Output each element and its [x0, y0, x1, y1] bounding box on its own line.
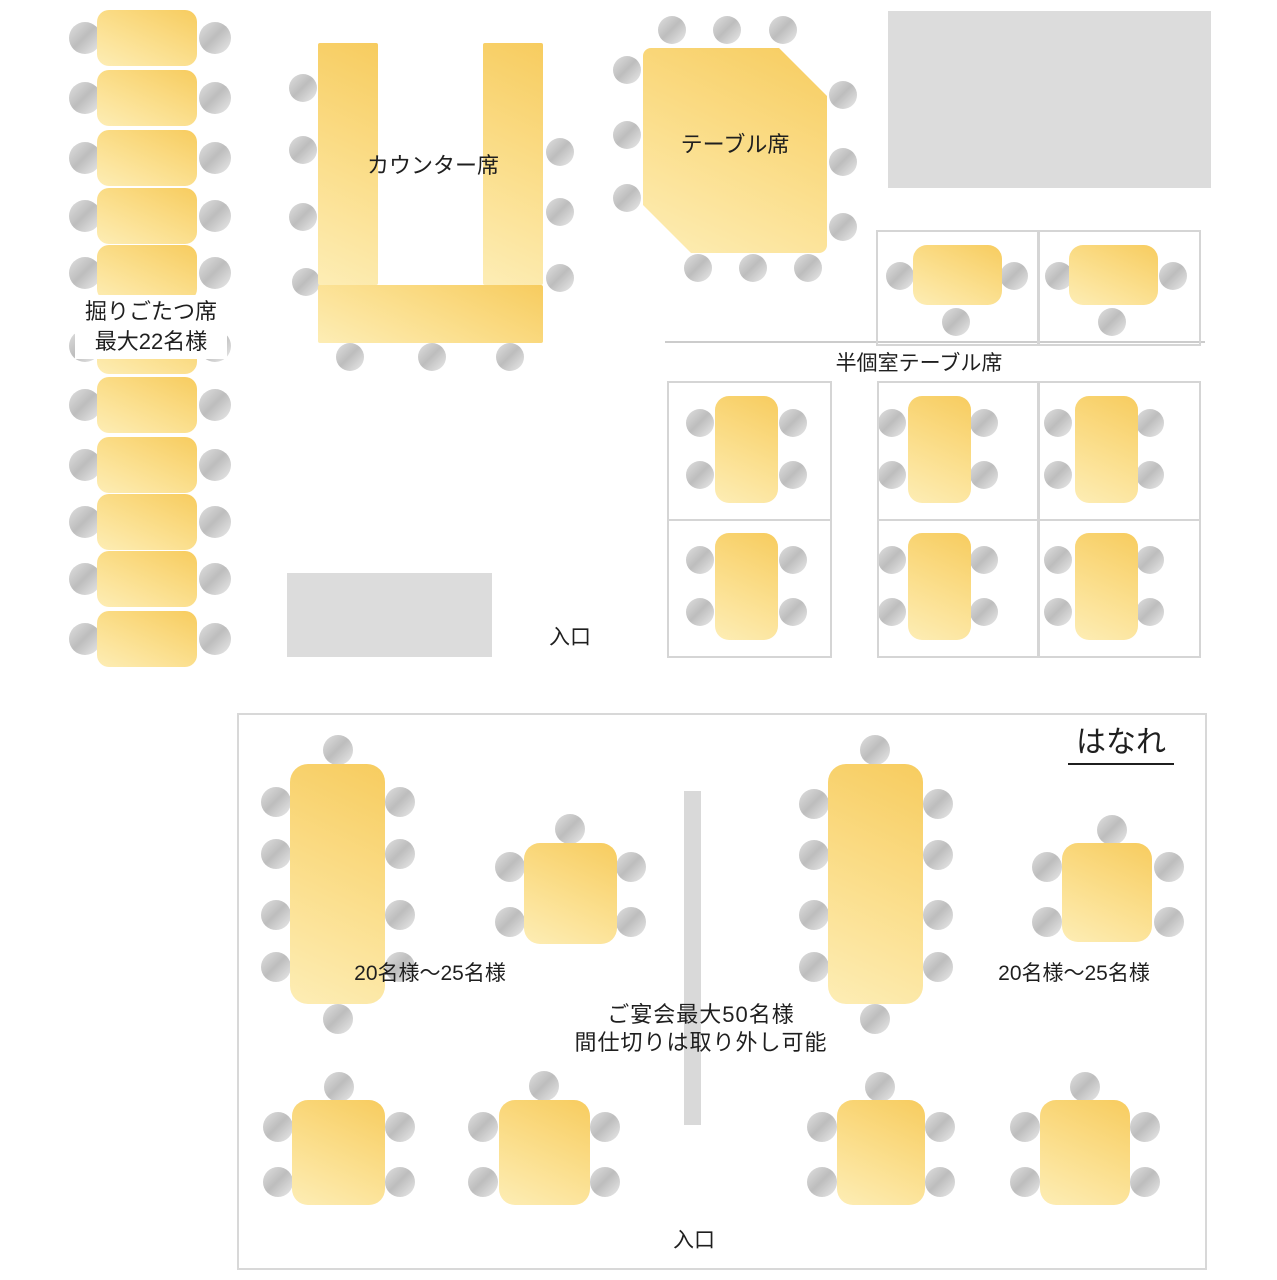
floor-plan: 掘りごたつ席 最大22名様 カウンター席 テーブル席 半個室テーブル席 入口 は… [0, 0, 1277, 1280]
table-seats-chair [713, 16, 741, 44]
horigotatsu-chair [199, 389, 231, 421]
entrance-main-label: 入口 [549, 623, 591, 653]
counter-chair [336, 343, 364, 371]
hanare-label: はなれ [1068, 726, 1174, 765]
counter-chair [289, 136, 317, 164]
banquet-capacity-line1: ご宴会最大50名様 [574, 1001, 827, 1029]
horigotatsu-chair [199, 257, 231, 289]
counter-chair [546, 138, 574, 166]
horigotatsu-table [97, 130, 197, 186]
horigotatsu-table [97, 10, 197, 66]
horigotatsu-table [97, 70, 197, 126]
semi-private-table [715, 396, 778, 503]
horigotatsu-table [97, 437, 197, 493]
counter-chair [289, 74, 317, 102]
capacity-right-label: 20名様〜25名様 [998, 959, 1150, 989]
hanare-square-table [524, 843, 617, 944]
counter-chair [289, 203, 317, 231]
table-seats-chair [613, 121, 641, 149]
semi-private-table [1069, 245, 1158, 305]
semi-private-table [908, 396, 971, 503]
banquet-capacity-label: ご宴会最大50名様 間仕切りは取り外し可能 [574, 1001, 827, 1057]
table-seats-chair [658, 16, 686, 44]
banquet-capacity-line2: 間仕切りは取り外し可能 [574, 1029, 827, 1057]
horigotatsu-table [97, 188, 197, 244]
table-seats-chair [739, 254, 767, 282]
horigotatsu-label-line1: 掘りごたつ席 [85, 297, 217, 327]
horigotatsu-label-line2: 最大22名様 [85, 327, 217, 357]
hanare-square-table [499, 1100, 590, 1205]
hanare-square-table [1040, 1100, 1130, 1205]
hanare-long-table [828, 764, 923, 1004]
hanare-square-table [837, 1100, 925, 1205]
horigotatsu-chair [199, 506, 231, 538]
counter-seats-label: カウンター席 [367, 151, 499, 181]
semi-private-table [908, 533, 971, 640]
counter-chair [418, 343, 446, 371]
horigotatsu-chair [199, 142, 231, 174]
horigotatsu-chair [199, 82, 231, 114]
horigotatsu-label: 掘りごたつ席 最大22名様 [75, 295, 227, 359]
counter-chair [292, 268, 320, 296]
horigotatsu-table [97, 494, 197, 550]
entrance-hanare-label: 入口 [673, 1226, 715, 1256]
counter-chair [496, 343, 524, 371]
semi-private-table [715, 533, 778, 640]
counter-chair [546, 198, 574, 226]
hanare-square-table [292, 1100, 385, 1205]
wall-block-top-right [888, 11, 1211, 188]
hanare-square-table [1062, 843, 1152, 942]
horigotatsu-table [97, 611, 197, 667]
table-seats-chair [613, 56, 641, 84]
table-seats-chair [794, 254, 822, 282]
table-seats-chair [829, 81, 857, 109]
horigotatsu-table [97, 551, 197, 607]
horigotatsu-table [97, 245, 197, 301]
table-seats-label: テーブル席 [681, 130, 790, 160]
horigotatsu-chair [199, 563, 231, 595]
horigotatsu-chair [199, 623, 231, 655]
capacity-left-label: 20名様〜25名様 [354, 959, 506, 989]
horigotatsu-chair [199, 449, 231, 481]
table-seats-chair [829, 148, 857, 176]
semi-private-table [1075, 533, 1138, 640]
semi-private-table [1075, 396, 1138, 503]
semi-private-label: 半個室テーブル席 [836, 349, 1003, 379]
horigotatsu-table [97, 377, 197, 433]
table-seats-chair [684, 254, 712, 282]
table-seats-chair [613, 184, 641, 212]
counter-chair [546, 264, 574, 292]
counter-bar-bottom [318, 285, 543, 343]
wall-block-entrance [287, 573, 492, 657]
table-seats-chair [829, 213, 857, 241]
semi-private-table [913, 245, 1002, 305]
table-seats-chair [769, 16, 797, 44]
horigotatsu-chair [199, 200, 231, 232]
horigotatsu-chair [199, 22, 231, 54]
